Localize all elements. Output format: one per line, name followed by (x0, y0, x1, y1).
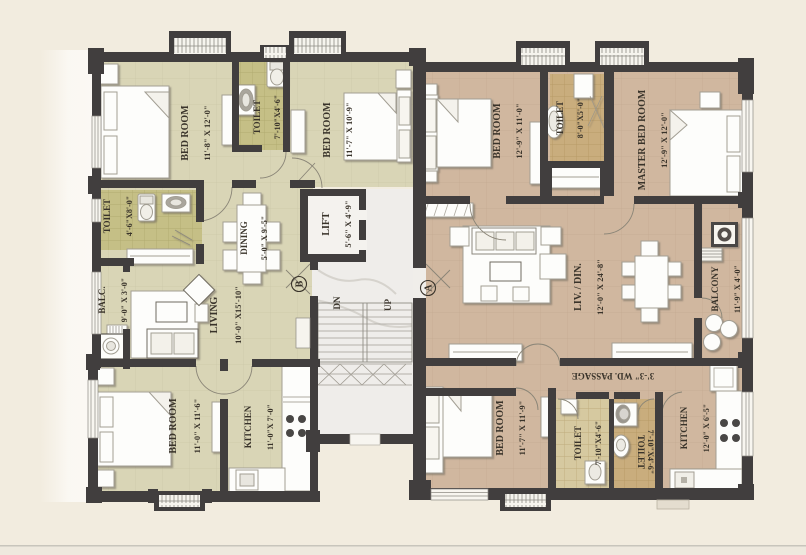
svg-text:DN: DN (332, 296, 342, 309)
svg-text:5'-0" X 9'-5": 5'-0" X 9'-5" (260, 216, 269, 260)
svg-text:TOILET: TOILET (555, 101, 565, 135)
svg-text:5'-6" X 4'-9": 5'-6" X 4'-9" (343, 200, 353, 247)
svg-text:TOILET: TOILET (252, 100, 262, 134)
svg-text:BED ROOM: BED ROOM (168, 398, 179, 454)
svg-text:TOILET: TOILET (573, 426, 583, 460)
svg-text:LIV. / DIN.: LIV. / DIN. (573, 263, 584, 311)
svg-text:11'-9" X 4'-0": 11'-9" X 4'-0" (733, 265, 742, 313)
svg-text:9'-0" X 3'-0": 9'-0" X 3'-0" (120, 278, 129, 322)
svg-text:12'-9" X 11'-0": 12'-9" X 11'-0" (514, 103, 524, 158)
svg-text:12'-9" X 12'-0": 12'-9" X 12'-0" (659, 112, 669, 168)
svg-text:11'-8" X 12'-0": 11'-8" X 12'-0" (202, 105, 212, 160)
svg-text:DINING: DINING (239, 221, 249, 255)
svg-text:BED ROOM: BED ROOM (495, 400, 506, 456)
svg-text:LIVING: LIVING (209, 296, 220, 333)
svg-text:7'-10"X4'-6": 7'-10"X4'-6" (646, 430, 655, 474)
svg-text:KITCHEN: KITCHEN (679, 406, 689, 449)
svg-text:BALC.: BALC. (97, 286, 107, 313)
svg-text:7'-10"X4'-6": 7'-10"X4'-6" (594, 421, 603, 465)
svg-text:BED ROOM: BED ROOM (180, 105, 191, 161)
svg-text:B: B (295, 280, 306, 287)
svg-text:KITCHEN: KITCHEN (243, 405, 253, 448)
svg-text:7'-10"X4'-6": 7'-10"X4'-6" (273, 95, 282, 139)
svg-text:4'-6"X8'-0": 4'-6"X8'-0" (125, 196, 134, 236)
svg-text:12'-0" X 6'-5": 12'-0" X 6'-5" (702, 404, 711, 452)
svg-text:MASTER BED ROOM: MASTER BED ROOM (637, 89, 648, 190)
svg-text:10'-0" X15'-10": 10'-0" X15'-10" (233, 286, 243, 344)
svg-text:12'-0" X 24'-8": 12'-0" X 24'-8" (595, 259, 605, 315)
svg-text:TOILET: TOILET (636, 435, 646, 469)
svg-text:TOILET: TOILET (102, 199, 112, 233)
svg-text:BED ROOM: BED ROOM (322, 102, 333, 158)
svg-text:3'-3" WD. PASSAGE: 3'-3" WD. PASSAGE (572, 371, 654, 381)
svg-text:BALCONY: BALCONY (710, 266, 720, 312)
svg-text:11'-0" X 11'-6": 11'-0" X 11'-6" (192, 399, 202, 454)
svg-text:UP: UP (383, 299, 393, 311)
svg-text:A: A (424, 284, 435, 292)
svg-text:BED ROOM: BED ROOM (492, 103, 503, 159)
svg-text:11'-0"X 7'-0": 11'-0"X 7'-0" (266, 404, 275, 450)
svg-text:11'-7" X 11'-9": 11'-7" X 11'-9" (517, 401, 527, 456)
svg-text:8'-0"X5'-0": 8'-0"X5'-0" (576, 98, 585, 138)
svg-text:11'-7" X 10'-9": 11'-7" X 10'-9" (344, 102, 354, 157)
svg-text:LIFT: LIFT (321, 212, 332, 236)
